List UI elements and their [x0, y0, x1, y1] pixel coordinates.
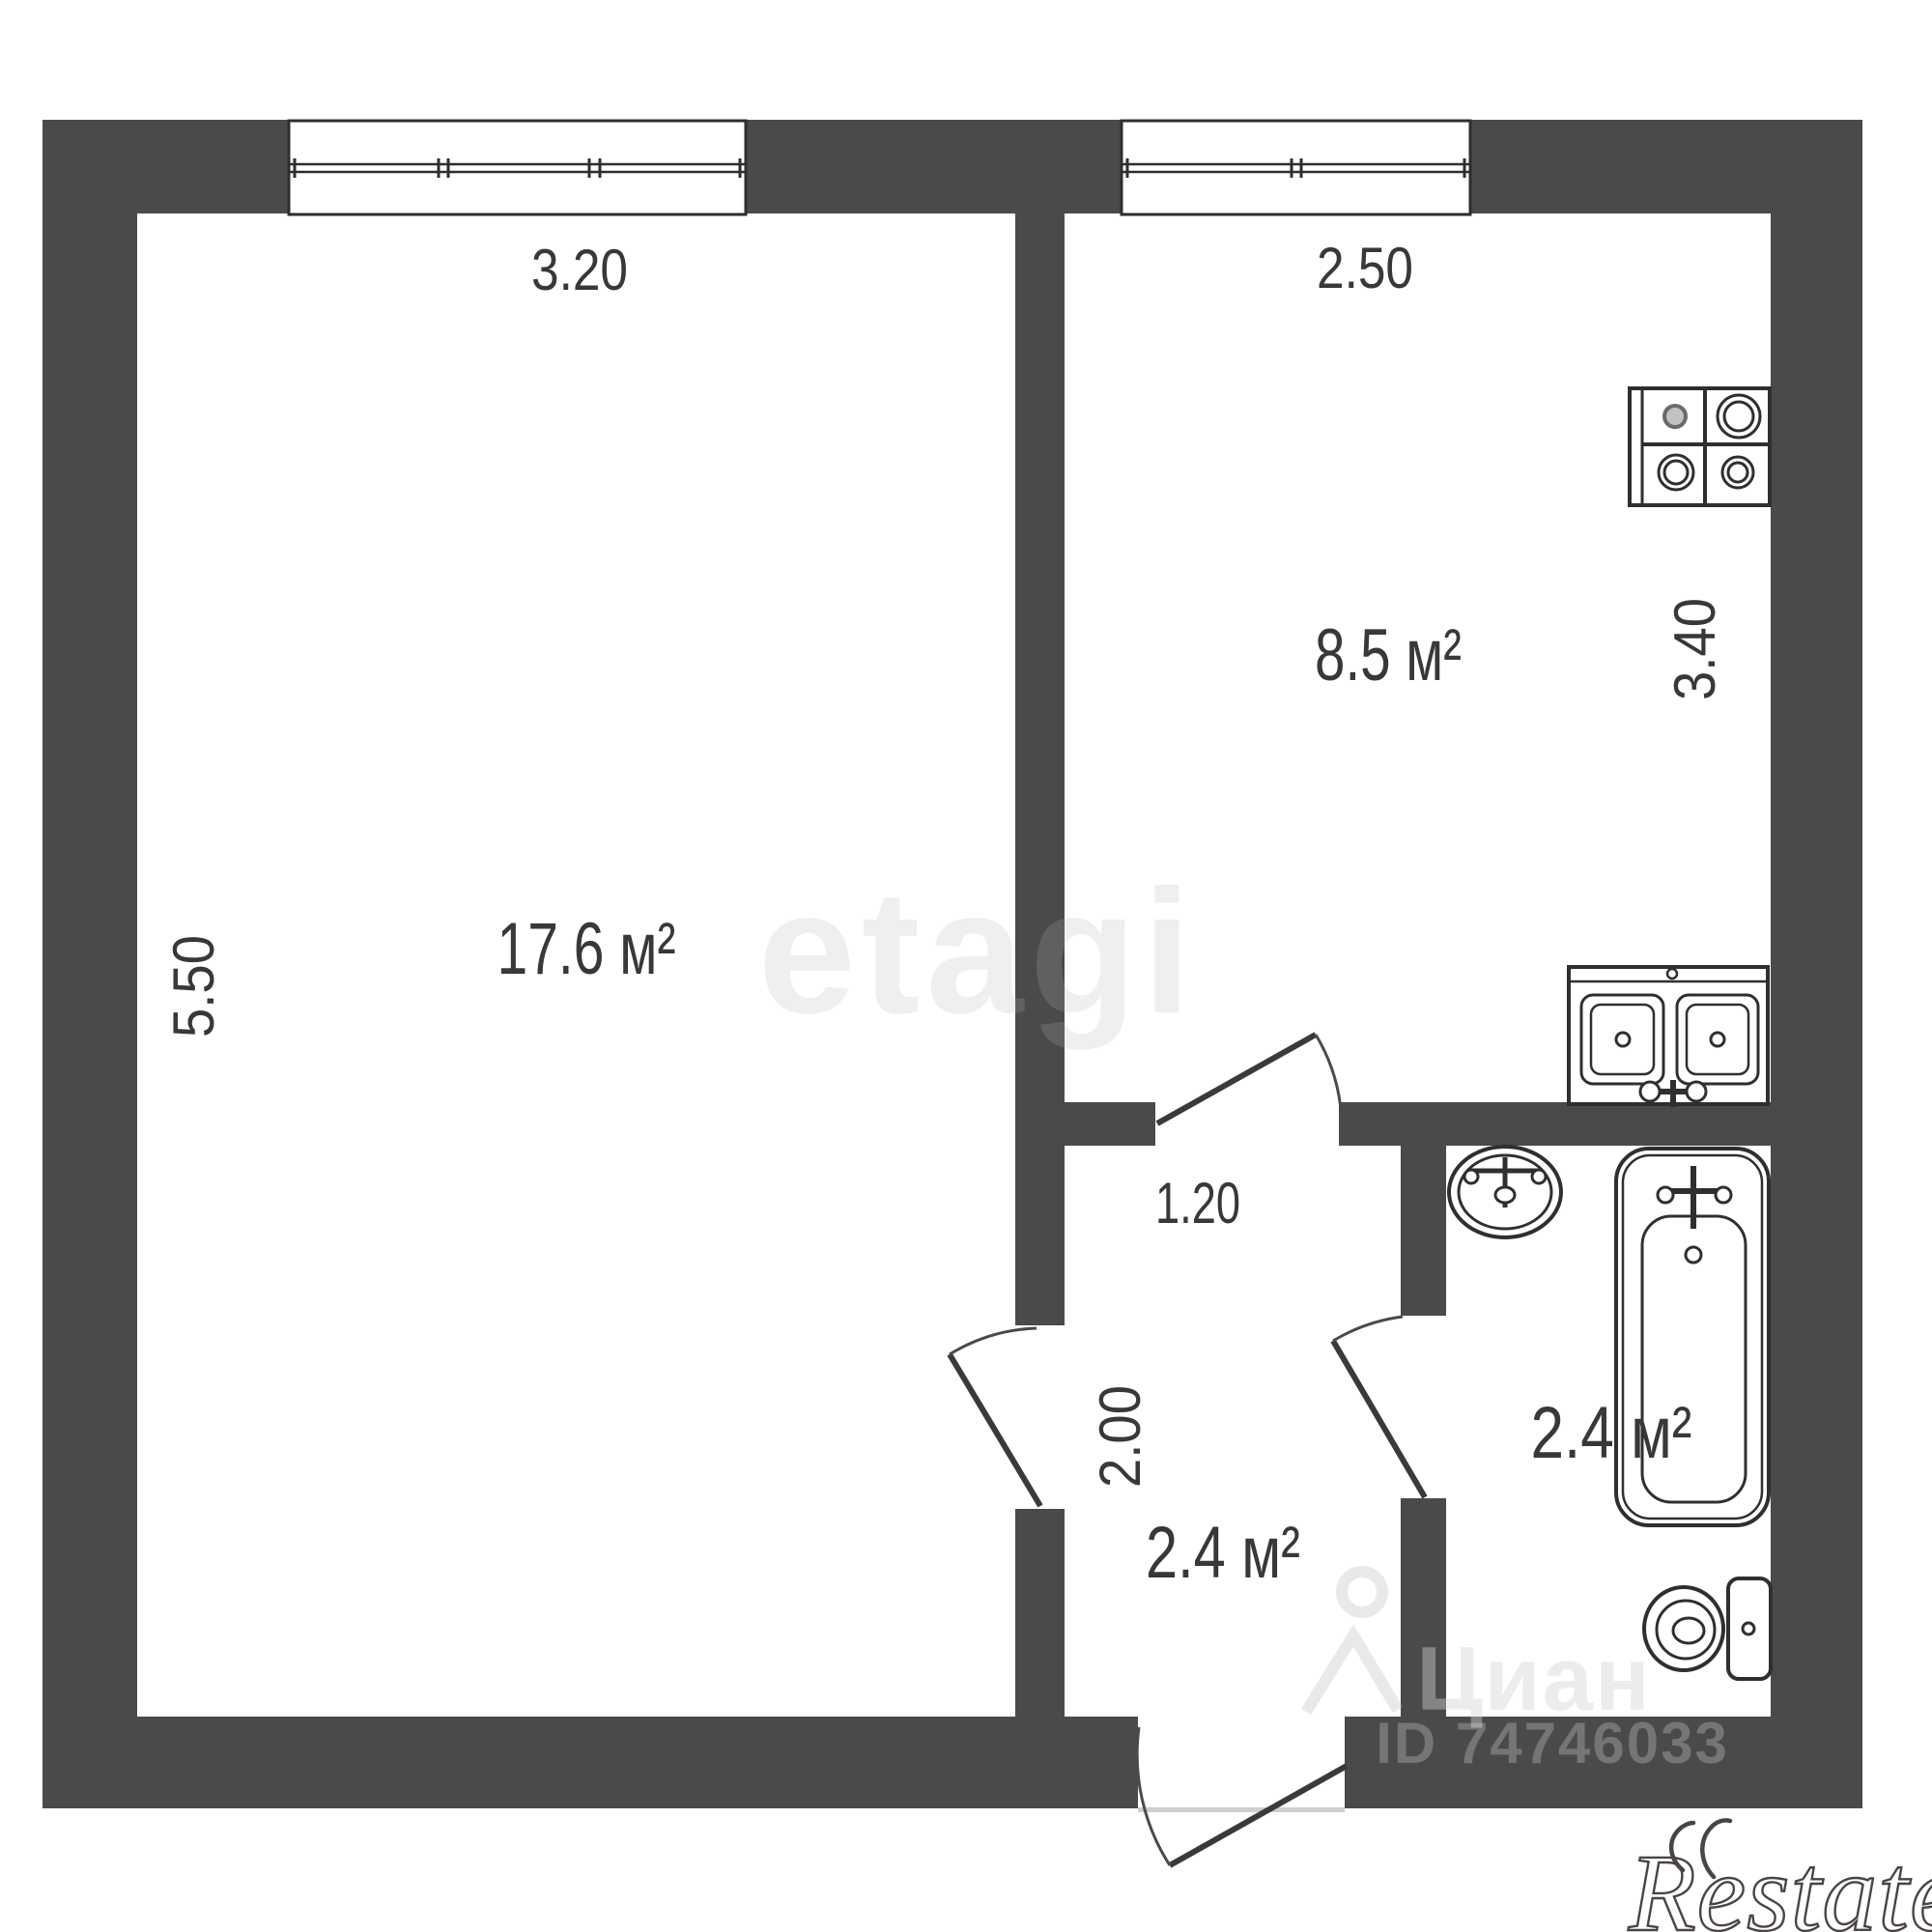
svg-text:17.6 м²: 17.6 м² [497, 908, 676, 990]
svg-text:2.00: 2.00 [1088, 1385, 1152, 1488]
svg-text:ID 74746033: ID 74746033 [1376, 1711, 1729, 1776]
svg-text:3.40: 3.40 [1662, 598, 1727, 700]
svg-text:1.20: 1.20 [1155, 1171, 1240, 1236]
svg-text:etagi: etagi [758, 853, 1198, 1050]
svg-text:8.5 м²: 8.5 м² [1315, 614, 1462, 696]
svg-text:Restate: Restate [1628, 1832, 1932, 1932]
svg-text:2.4 м²: 2.4 м² [1146, 1512, 1300, 1594]
svg-text:2.50: 2.50 [1317, 236, 1413, 300]
svg-text:3.20: 3.20 [531, 238, 628, 302]
svg-text:2.4 м²: 2.4 м² [1531, 1392, 1692, 1474]
svg-text:5.50: 5.50 [161, 935, 226, 1037]
